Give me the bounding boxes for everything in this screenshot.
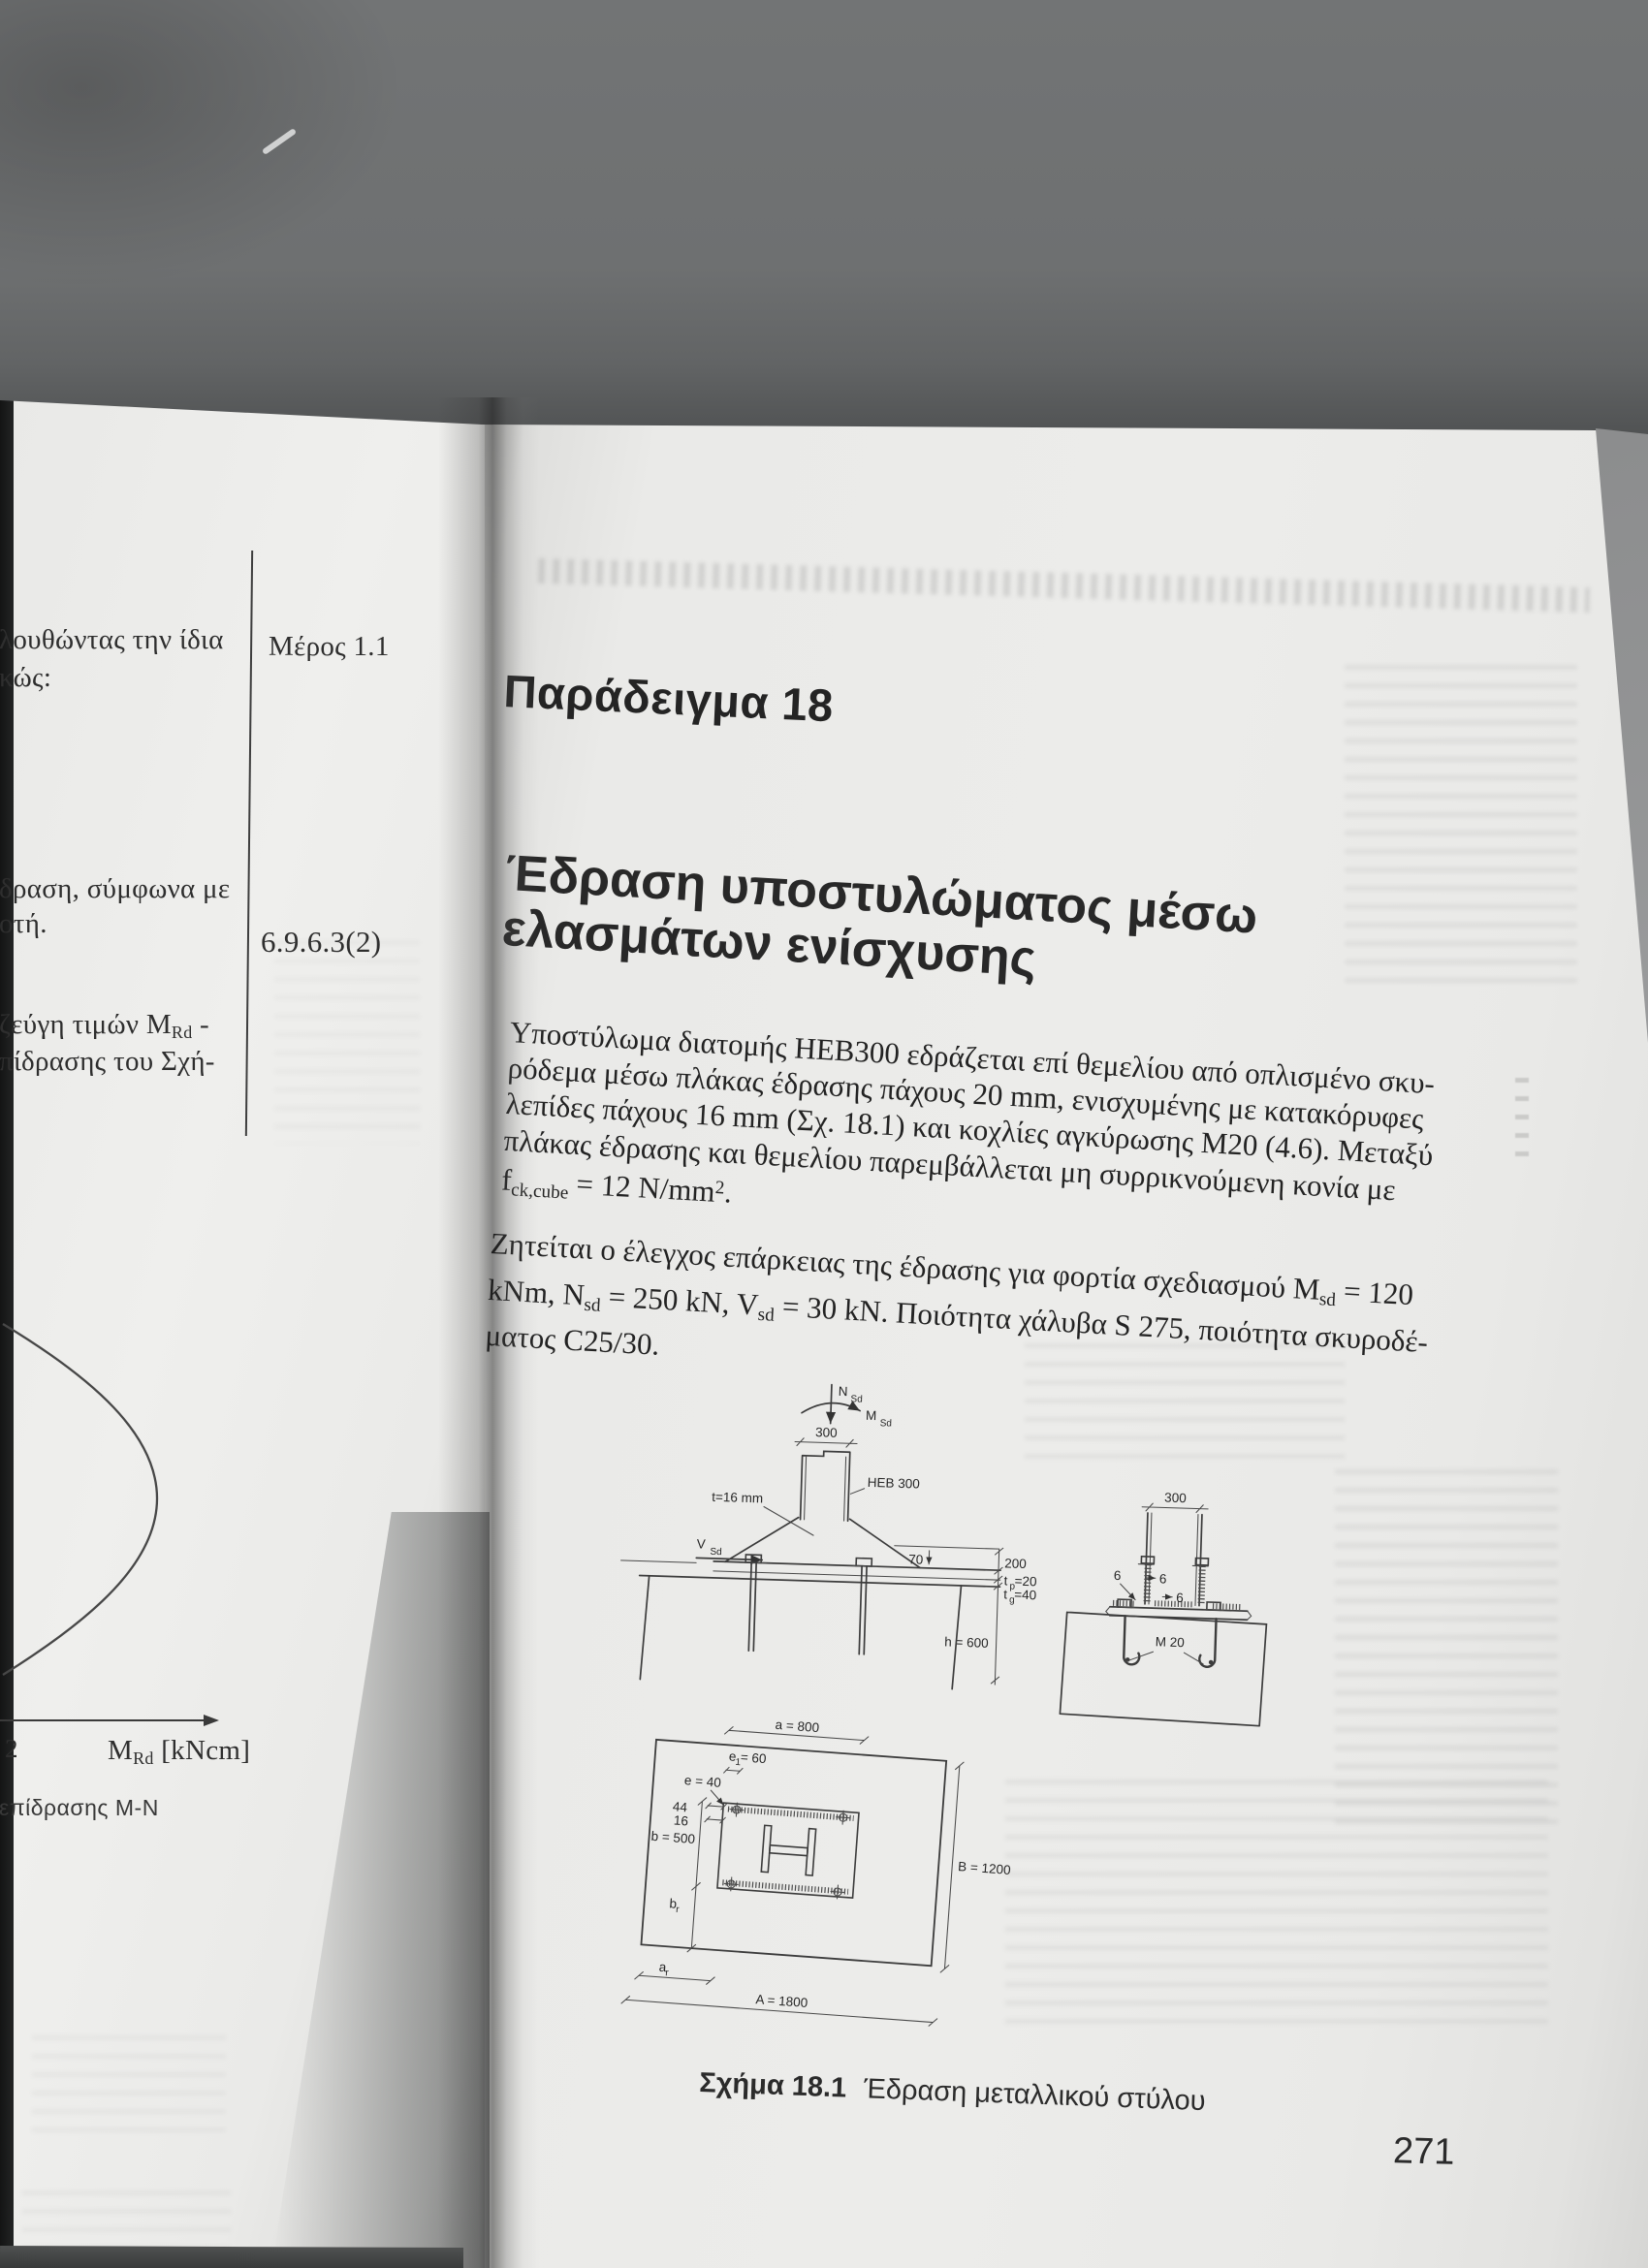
dim-70-label: 70 <box>908 1552 923 1566</box>
margin-rule <box>245 551 253 1136</box>
e40-label: e = 40 <box>683 1773 721 1790</box>
dim-200-label: 200 <box>1004 1556 1027 1571</box>
left-text-line: οτή. <box>0 908 48 940</box>
weld-6-label: 6 <box>1114 1568 1122 1583</box>
section-heading: Έδραση υποστυλώματος μέσω ελασμάτων ενίσ… <box>500 846 1258 1000</box>
tg-label: t <box>1003 1587 1007 1601</box>
figure-18-1: V Sd N Sd M Sd 300 HEB 300 t=16 mm <box>605 1349 1587 2096</box>
dim-300-label: 300 <box>1164 1490 1187 1505</box>
axis-unit: [kNcm] <box>154 1735 251 1766</box>
axis-tick-label: 2 <box>5 1734 18 1764</box>
subscript: Rd <box>133 1748 154 1768</box>
t16-label: t=16 mm <box>712 1490 763 1506</box>
tg-value: =40 <box>1014 1588 1036 1603</box>
page-number: 271 <box>1392 2130 1454 2174</box>
h600-label: h = 600 <box>944 1634 989 1650</box>
subscript: Sd <box>710 1547 722 1558</box>
a800-label: a = 800 <box>775 1717 819 1735</box>
body-text: = 250 kN, V <box>600 1278 759 1321</box>
subscript: r <box>676 1905 681 1915</box>
force-v-label: V <box>696 1536 705 1551</box>
axis-line <box>0 1719 206 1721</box>
spine-shadow <box>438 397 539 2268</box>
subscript: Sd <box>880 1418 893 1429</box>
weld-6-label: 6 <box>1176 1591 1184 1605</box>
subscript: Sd <box>850 1394 863 1404</box>
A1800-label: A = 1800 <box>755 1992 808 2010</box>
weld-6-label: 6 <box>1159 1571 1167 1586</box>
left-text-line: ζεύγη τιμών MRd - <box>0 1009 209 1043</box>
plan-view: a = 800 e 1 = 60 e = 40 44 16 b = 500 b … <box>621 1708 1021 2032</box>
B1200-label: B = 1200 <box>958 1859 1011 1877</box>
body-text: = 120 <box>1336 1274 1414 1311</box>
paragraph-1: Υποστύλωμα διατομής HEB300 εδράζεται επί… <box>500 1014 1439 1259</box>
axis-label: MRd [kNcm] <box>108 1735 250 1769</box>
left-text-line: λουθώντας την ίδια <box>0 624 224 656</box>
ghost-smudge <box>274 940 420 1144</box>
tp-label: t <box>1003 1573 1007 1588</box>
axis-arrowhead-icon <box>204 1715 219 1726</box>
ghost-smudge <box>32 2035 226 2142</box>
left-text-line: πίδρασης του Σχή- <box>0 1046 215 1078</box>
detail-view: 300 6 6 6 <box>1060 1487 1270 1725</box>
heb-300-label: HEB 300 <box>868 1475 920 1492</box>
force-n-label: N <box>839 1384 848 1399</box>
axis-symbol: M <box>108 1735 133 1766</box>
ghost-smudge <box>1345 665 1577 985</box>
interaction-curve <box>0 1312 170 1685</box>
subscript: sd <box>584 1294 601 1315</box>
margin-note: Μέρος 1.1 <box>269 631 390 663</box>
left-text-line: κώς: <box>0 662 51 694</box>
left-text: ζεύγη τιμών M <box>0 1009 172 1040</box>
figure-caption-number: Σχήμα 18.1 <box>699 2067 847 2104</box>
margin-note: 6.9.6.3(2) <box>261 925 381 960</box>
corner-shadow <box>0 0 407 291</box>
m20-label: M 20 <box>1156 1634 1185 1650</box>
left-text-line: δραση, σύμφωνα με <box>0 873 230 905</box>
scanned-book-photo: λουθώντας την ίδια κώς: Μέρος 1.1 δραση,… <box>0 0 1648 2268</box>
bottom-edge-shadow <box>0 2246 463 2268</box>
subscript: Rd <box>172 1023 193 1042</box>
example-title: Παράδειγμα 18 <box>503 664 835 732</box>
moment-m-label: M <box>866 1408 877 1423</box>
d16-label: 16 <box>673 1812 688 1828</box>
ghost-smudge <box>1515 1078 1529 1167</box>
elevation-view: V Sd N Sd M Sd 300 HEB 300 t=16 mm <box>617 1377 1042 1691</box>
ghost-smudge <box>538 558 1590 613</box>
diagram-caption: επίδρασης M-N <box>0 1795 159 1821</box>
body-text: . <box>723 1175 733 1209</box>
dim-300-label: 300 <box>815 1425 838 1440</box>
body-text: = 12 N/mm <box>568 1166 716 1208</box>
b500-label: b = 500 <box>650 1829 695 1846</box>
subscript: sd <box>1318 1289 1336 1310</box>
left-text: - <box>193 1009 210 1040</box>
right-page: Παράδειγμα 18 Έδραση υποστυλώματος μέσω … <box>482 423 1648 2268</box>
subscript: sd <box>757 1304 775 1325</box>
e1-value: = 60 <box>740 1749 767 1766</box>
